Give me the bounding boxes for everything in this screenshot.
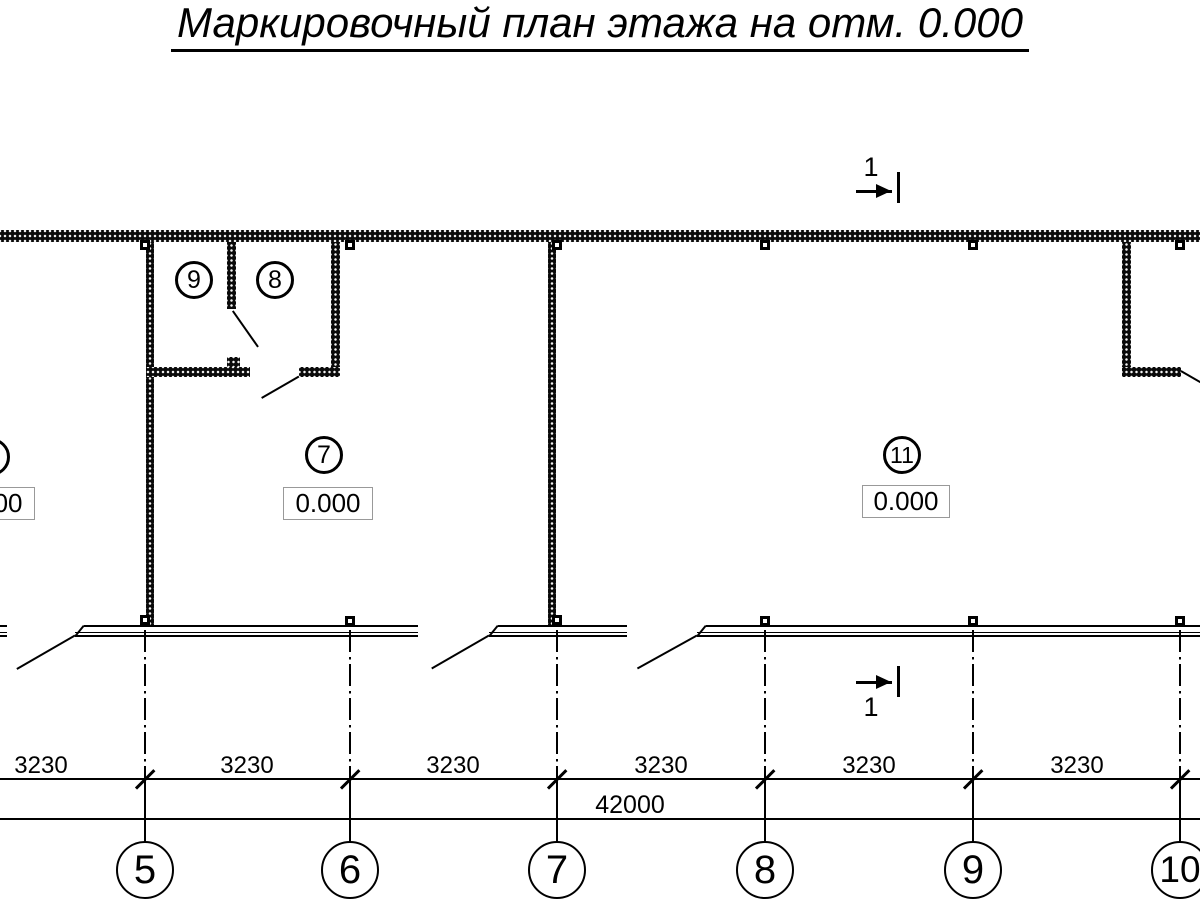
elevation-value-room7: 0.000 [295,488,360,519]
elevation-box-room7: 0.000 [283,487,373,520]
room-number-11: 11 [890,442,914,469]
dim-label-5: 3230 [819,752,919,780]
axis-bubble-7: 7 [528,841,586,899]
axis-number-6: 6 [339,848,361,893]
axis-bubble-8: 8 [736,841,794,899]
column-mark-bottom-axis7 [552,615,562,625]
axis-number-10: 10 [1159,849,1200,891]
column-mark-top-axis5 [140,240,150,250]
axis-number-5: 5 [134,848,156,893]
sill-left-edge [0,625,7,637]
column-mark-top-axis6 [345,240,355,250]
sill-segment-2 [489,625,627,637]
door-swing-room8 [261,376,299,399]
axis-number-8: 8 [754,848,776,893]
room-circle-11: 11 [883,436,921,474]
axis-line-8-lower [764,779,766,842]
axis-bubble-6: 6 [321,841,379,899]
room-number-7: 7 [317,441,331,470]
elevation-value-room11: 0.000 [873,486,938,517]
axis-line-10 [1179,630,1181,780]
section-arrowhead-bottom [876,675,891,689]
room9-bottom-wall [146,367,250,377]
axis-line-10-lower [1179,779,1181,842]
entrance-door-swing-1 [17,635,76,670]
dim-label-6: 3230 [1027,752,1127,780]
entrance-door-swing-2 [431,635,489,669]
axis-number-9: 9 [962,848,984,893]
room-circle-8: 8 [256,261,294,299]
drawing-title: Маркировочный план этажа на отм. 0.000 [171,0,1029,52]
right-room-bottom-wall [1122,367,1181,377]
axis-line-9-lower [972,779,974,842]
dim-label-4: 3230 [611,752,711,780]
axis-number-7: 7 [546,848,568,893]
dim-label-2: 3230 [197,752,297,780]
axis-line-9 [972,630,974,780]
axis-line-8 [764,630,766,780]
sill-segment-1 [75,625,418,637]
drawing-title-wrap: Маркировочный план этажа на отм. 0.000 [0,0,1200,52]
sill-segment-3 [697,625,1200,637]
wall-axis-5 [146,242,154,625]
column-mark-top-axis8 [760,240,770,250]
partition-room9-room8 [227,242,236,309]
elevation-value-left: 0.000 [0,488,23,519]
column-mark-top-axis9 [968,240,978,250]
entrance-door-swing-3 [637,635,697,669]
dim-label-overall: 42000 [570,791,690,820]
axis-line-7 [556,630,558,780]
axis-line-5 [144,630,146,780]
right-room-left-wall [1122,242,1131,377]
section-bar-top [897,172,900,203]
axis-bubble-10: 10 [1151,841,1200,899]
elevation-box-room11: 0.000 [862,485,950,518]
column-mark-bottom-axis9 [968,616,978,626]
axis-line-7-lower [556,779,558,842]
section-label-top: 1 [856,152,886,183]
axis-line-6-lower [349,779,351,842]
exterior-top-wall [0,230,1200,242]
section-arrowhead-top [876,184,891,198]
column-mark-bottom-axis8 [760,616,770,626]
section-label-bottom: 1 [856,692,886,723]
section-bar-bottom [897,666,900,697]
room-number-8: 8 [268,266,282,295]
door-jamb-stub [227,357,240,367]
door-swing-right-room [1181,370,1200,383]
room-circle-left-partial [0,438,10,476]
room8-bottom-wall [299,367,340,377]
column-mark-bottom-axis5 [140,615,150,625]
floor-plan-drawing: Маркировочный план этажа на отм. 0.000 9 [0,0,1200,900]
axis-bubble-5: 5 [116,841,174,899]
door-swing-room9 [232,310,258,347]
room8-right-wall [331,242,340,377]
axis-bubble-9: 9 [944,841,1002,899]
column-mark-bottom-axis10 [1175,616,1185,626]
dim-label-1: 3230 [0,752,91,780]
elevation-box-left: 0.000 [0,487,35,520]
dimension-line-segments [0,778,1200,780]
column-mark-top-axis7 [552,240,562,250]
column-mark-top-axis10 [1175,240,1185,250]
dim-label-3: 3230 [403,752,503,780]
axis-line-6 [349,630,351,780]
column-mark-bottom-axis6 [345,616,355,626]
wall-axis-7 [548,242,556,625]
axis-line-5-lower [144,779,146,842]
room-number-9: 9 [187,266,201,295]
room-circle-9: 9 [175,261,213,299]
room-circle-7: 7 [305,436,343,474]
